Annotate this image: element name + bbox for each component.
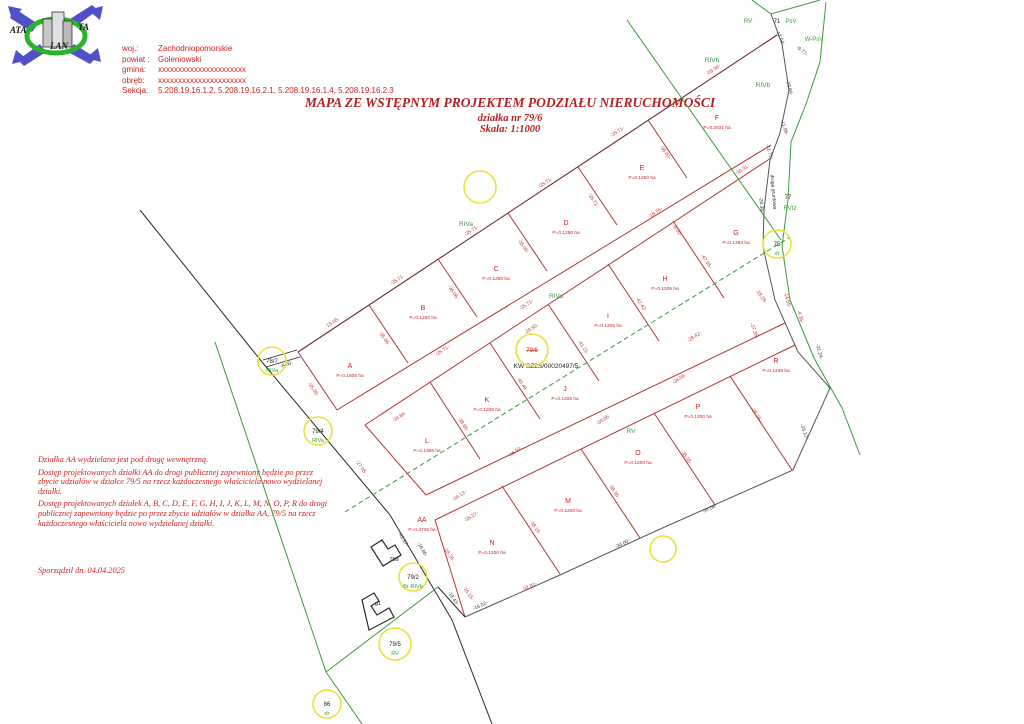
dimension-label: -34.06- — [701, 503, 718, 515]
parcel-area: P=0.1250 ha — [482, 276, 510, 282]
circle-parcel-number: 79/4 — [312, 429, 324, 435]
dimension-label: -15.05- — [324, 316, 341, 330]
parcel-letter: C — [493, 266, 498, 273]
map-line-green-top-2 — [771, 0, 820, 14]
dimension-label: -41.21- — [576, 339, 590, 356]
map-line-div1-AB — [369, 305, 408, 363]
map-line-div1-EF — [648, 120, 687, 178]
circle-soil-class: RIVa — [266, 368, 279, 374]
dimension-label: -12.04- — [774, 29, 786, 46]
parcel-letter: I — [607, 313, 609, 320]
dimension-label: -47.05- — [699, 253, 713, 270]
circle-soil-class: RV — [391, 651, 399, 657]
circle-parcel-number: 75 — [774, 242, 781, 248]
parcel-label-G: GP=0.1363 ha — [722, 230, 750, 246]
map-text-71: 71 — [774, 19, 781, 25]
dimension-label: -18.26- — [442, 546, 456, 563]
parcel-area: P=0.1250 ha — [552, 230, 580, 236]
map-text-w-psv: W-PsV — [805, 37, 824, 43]
parcel-area: P=0.1205 ha — [473, 407, 501, 413]
circle-soil-class: RIVa — [312, 438, 325, 444]
parcel-label-N: NP=0.1200 ha — [478, 540, 506, 556]
parcel-letter: A — [348, 363, 353, 370]
parcel-letter: R — [773, 358, 778, 365]
circle-parcel-number: 86 — [324, 702, 331, 708]
parcel-letter: M — [565, 498, 571, 505]
parcel-letter: L — [425, 438, 429, 445]
parcel-letter: AA — [417, 517, 427, 524]
dimension-label: -34.06- — [595, 413, 612, 427]
parcel-label-R: RP=0.1236 ha — [762, 358, 790, 374]
dimension-label: -27.05- — [354, 459, 368, 476]
dimension-label: -31.24- — [814, 343, 824, 360]
dimension-label: -18.76- — [647, 206, 664, 220]
parcel-number-circle — [464, 171, 496, 203]
map-line-west-arm — [140, 210, 262, 362]
parcel-label-F: FP=0.2031 ha — [703, 115, 731, 131]
parcel-area: P=0.1200 ha — [624, 460, 652, 466]
map-text-rv: RV — [627, 428, 637, 435]
circle-parcel-number: 78/7 — [266, 359, 278, 365]
parcel-label-I: IP=0.1205 ha — [594, 313, 622, 329]
map-line-road1-se-edge — [365, 158, 771, 425]
dimension-label: -28.42- — [686, 330, 703, 344]
map-text-rivb: RIVb — [705, 57, 720, 64]
dimension-label: -35.06- — [377, 330, 391, 347]
dimension-label: -34.13- — [451, 489, 468, 503]
parcel-label-A: AP=0.1506 ha — [336, 363, 364, 379]
parcel-letter: K — [485, 397, 490, 404]
dimension-label: -30.31- — [734, 163, 751, 177]
dimension-label: -35.71- — [434, 344, 451, 358]
parcel-letter: G — [733, 230, 738, 237]
dimension-label: -34.84- — [391, 410, 408, 424]
parcel-letter: B — [421, 305, 426, 312]
map-line-div3-NM — [502, 486, 560, 574]
dimension-label: -11.75- — [764, 143, 774, 160]
dimension-label: -35.35- — [679, 449, 693, 466]
dimension-label: -28.16- — [749, 406, 763, 423]
map-text-riva: RIVa — [459, 221, 473, 228]
map-line-nw-boundary-maroon — [298, 35, 777, 352]
map-line-green-top-1 — [752, 0, 771, 14]
parcel-area: P=0.1236 ha — [762, 368, 790, 374]
map-text-rviz: RVIz — [784, 206, 797, 212]
parcel-area: P=0.1250 ha — [409, 315, 437, 321]
parcel-letter: E — [640, 165, 645, 172]
parcel-area: P=0.1205 ha — [651, 286, 679, 292]
cadastral-map-page: ATA TA LAN woj.:Zachodniopomorskiepowiat… — [0, 0, 1024, 724]
dimension-label: -41.27- — [396, 531, 409, 548]
dimension-label: -35.71- — [389, 273, 406, 287]
parcel-letter: F — [715, 115, 719, 122]
map-line-div1-BC — [438, 259, 477, 317]
parcel-letter: J — [563, 386, 567, 393]
map-text-77: 77 — [785, 195, 792, 201]
parcel-letter: P — [696, 404, 701, 411]
dimension-label: -36.02- — [507, 445, 524, 459]
dimension-label: -38.16- — [528, 519, 542, 536]
map-line-div1-DE — [578, 167, 617, 225]
dimension-label: -35.27- — [463, 510, 480, 524]
circle-parcel-number: 79/5 — [389, 642, 401, 648]
dimension-label: -9.77- — [795, 45, 809, 58]
parcel-area: P=0.1506 ha — [336, 373, 364, 379]
map-line-div2-LK — [430, 382, 480, 459]
parcel-area: P=0.4736 ha — [408, 527, 436, 533]
dimension-label: -34.00- — [614, 538, 631, 550]
map-line-green-west — [215, 342, 326, 672]
map-line-strip1-sw-edge — [298, 352, 337, 410]
parcel-label-AA: AAP=0.4736 ha — [408, 517, 436, 533]
parcel-label-E: EP=0.1250 ha — [628, 165, 656, 181]
parcel-label-D: DP=0.1250 ha — [552, 220, 580, 236]
parcel-area: P=0.1205 ha — [551, 396, 579, 402]
map-line-green-sw-tail — [326, 672, 362, 724]
parcel-area: P=0.1250 ha — [628, 175, 656, 181]
map-line-ne-se-boundary — [465, 14, 830, 617]
parcel-label-O: OP=0.1200 ha — [624, 450, 652, 466]
map-line-div3-PR — [730, 376, 792, 470]
map-text-rivb: RIVb — [756, 82, 771, 89]
map-line-div1-CD — [508, 213, 547, 271]
parcel-area: P=0.1356 ha — [413, 448, 441, 454]
parcel-letter: O — [635, 450, 641, 457]
dimension-label: -18.28- — [754, 288, 768, 305]
dimension-label: -16.86- — [415, 541, 428, 558]
parcel-label-H: HP=0.1205 ha — [651, 276, 679, 292]
circle-soil-class: Br-RIVb — [403, 584, 423, 590]
parcel-area: P=0.1200 ha — [684, 414, 712, 420]
parcel-letter: H — [662, 276, 667, 283]
map-text-riva: RIVa — [549, 293, 563, 300]
dimension-label: -16.15- — [461, 585, 475, 602]
dimension-label: -36.06- — [446, 284, 460, 301]
map-text-g1: g1 — [375, 601, 381, 607]
dimension-label: -8.00- — [280, 360, 295, 370]
dimension-label: -23.84- — [784, 79, 794, 96]
parcel-label-K: KP=0.1205 ha — [473, 397, 501, 413]
map-line-strip3-sw-edge — [435, 520, 465, 617]
map-text-75d: 75d — [389, 557, 398, 563]
parcel-letter: N — [489, 540, 494, 547]
dimension-label: -8.00- — [671, 223, 683, 237]
parcel-area: P=0.1200 ha — [478, 550, 506, 556]
map-line-green-dirtroad-east — [782, 2, 860, 455]
circle-parcel-number: 79/6 — [526, 348, 538, 354]
dimension-label: -42.42- — [634, 296, 648, 313]
dimension-label: -33.12- — [798, 423, 809, 440]
parcel-label-J: JP=0.1205 ha — [551, 386, 579, 402]
map-line-div2-IH — [608, 264, 659, 341]
dimension-label: -59.36- — [705, 63, 722, 77]
dimension-label: -35.71- — [518, 298, 535, 312]
parcel-area: P=0.1200 ha — [554, 508, 582, 514]
parcel-label-P: PP=0.1200 ha — [684, 404, 712, 420]
dimension-label: -37.35- — [748, 322, 759, 339]
map-line-green-soil-dashed — [345, 237, 790, 512]
map-text-psv: PsV — [785, 19, 796, 25]
parcel-letter: D — [563, 220, 568, 227]
map-text-rv: RV — [744, 19, 752, 25]
parcel-area: P=0.1205 ha — [594, 323, 622, 329]
parcel-area: P=0.1363 ha — [722, 240, 750, 246]
map-line-green-795-nw — [326, 587, 438, 672]
parcel-area: P=0.2031 ha — [703, 125, 731, 131]
parcel-label-L: LP=0.1356 ha — [413, 438, 441, 454]
parcel-label-M: MP=0.1200 ha — [554, 498, 582, 514]
circle-parcel-number: 79/2 — [407, 575, 419, 581]
dimension-label: -14.65- — [782, 291, 792, 308]
parcel-label-C: CP=0.1250 ha — [482, 266, 510, 282]
dimension-label: -35.06- — [516, 238, 530, 255]
dimension-label: -34.06- — [671, 372, 688, 386]
circle-soil-class: dr — [775, 251, 780, 257]
cadastral-map-canvas: -15.05--35.71--35.71--35.71--35.71--59.3… — [0, 0, 1024, 724]
dimension-label: -28.36- — [757, 197, 764, 214]
map-text-droga-gruntowa: droga gruntowa — [768, 174, 777, 209]
dimension-label: -35.71- — [586, 192, 600, 209]
dimension-label: -35.05- — [306, 381, 320, 398]
circle-soil-class: dr — [325, 711, 330, 717]
map-line-strip2-sw-edge — [365, 425, 426, 495]
parcel-label-B: BP=0.1250 ha — [409, 305, 437, 321]
dimension-label: -32.81- — [521, 581, 538, 593]
parcel-number-circle — [650, 536, 676, 562]
